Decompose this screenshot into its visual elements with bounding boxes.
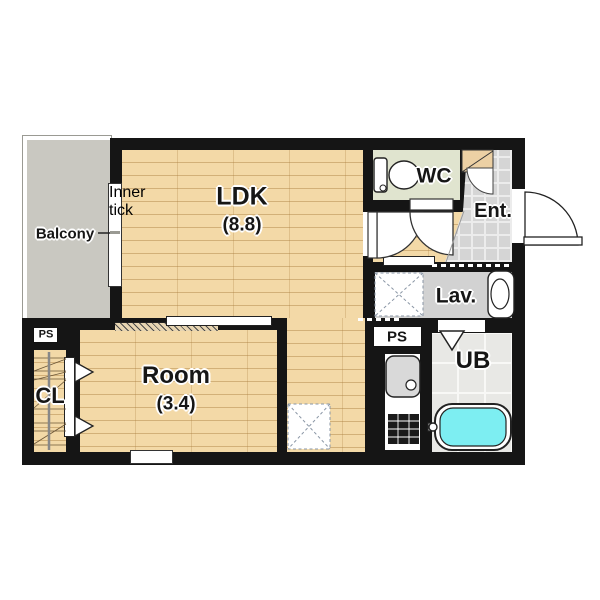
ldk-label: LDK [216,185,267,210]
vanity-icon [488,271,514,318]
closet-label: CL [35,385,64,407]
wc-door-swing-icon [410,199,453,255]
pipe-shaft-right-label: PS [387,330,407,345]
toilet-icon [374,158,419,192]
front-door-swing-icon [524,192,582,245]
floor-plan-canvas: Inner tick [0,0,600,600]
room-area: (3.4) [156,395,195,414]
ldk-area: (8.8) [222,216,261,235]
kitchen-sink-icon [386,356,420,397]
closet-door-icon [75,362,93,436]
shoe-cabinet-icon [462,150,493,194]
balcony-label: Balcony [36,227,94,242]
stove-icon [388,414,419,444]
washer-space-icon [375,273,423,316]
unit-bath-label: UB [456,349,491,373]
wc-label: WC [417,166,452,187]
fixtures-overlay [0,0,600,600]
bathtub-icon [428,404,511,450]
room-label: Room [142,364,210,388]
lavatory-label: Lav. [436,286,476,307]
pipe-shaft-left-label: PS [39,330,54,341]
entrance-label: Ent. [474,201,512,221]
fridge-space-icon [288,404,330,449]
